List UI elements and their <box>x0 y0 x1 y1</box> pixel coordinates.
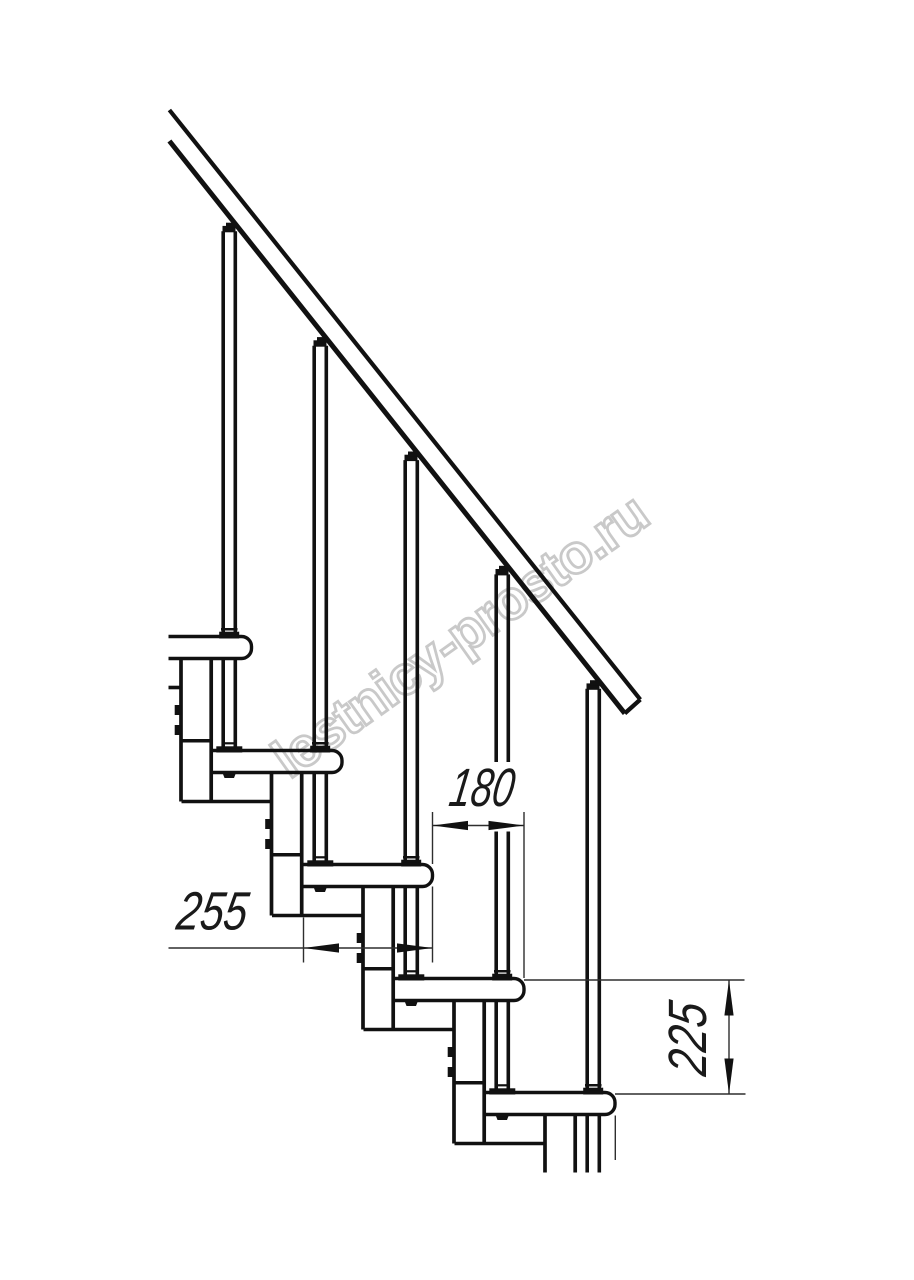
svg-text:255: 255 <box>172 882 253 942</box>
svg-text:225: 225 <box>658 997 718 1080</box>
svg-text:180: 180 <box>446 758 520 818</box>
